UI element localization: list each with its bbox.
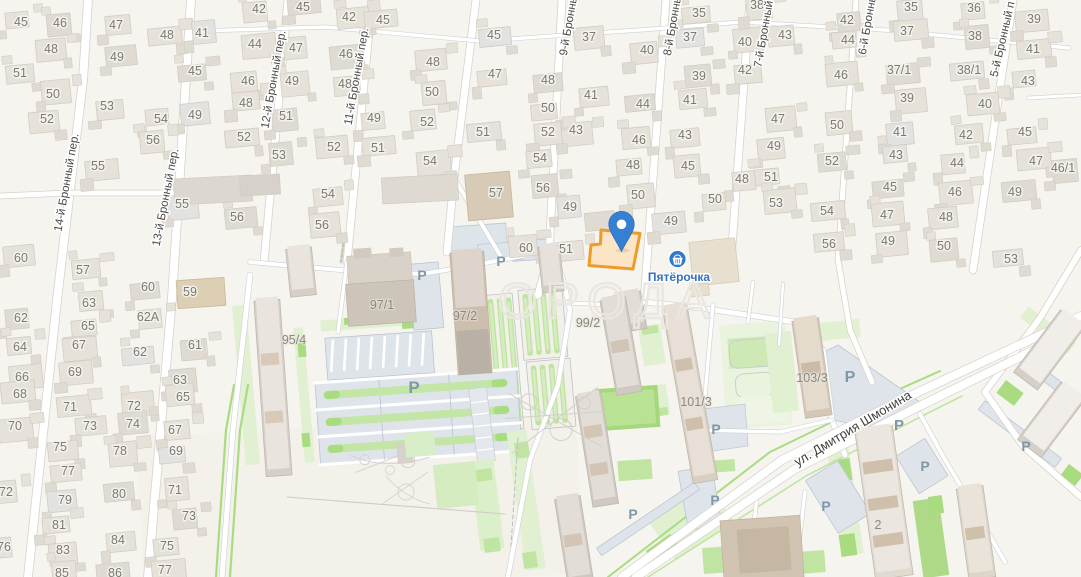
svg-text:46: 46 xyxy=(53,16,67,30)
svg-text:47: 47 xyxy=(880,208,894,222)
svg-text:P: P xyxy=(408,378,419,397)
svg-text:85: 85 xyxy=(55,566,69,577)
svg-text:45: 45 xyxy=(487,28,501,42)
svg-text:57: 57 xyxy=(76,263,90,277)
svg-text:39: 39 xyxy=(692,69,706,83)
svg-text:P: P xyxy=(628,506,637,522)
svg-text:47: 47 xyxy=(1029,154,1043,168)
svg-text:48: 48 xyxy=(939,210,953,224)
svg-text:42: 42 xyxy=(252,2,266,16)
svg-text:45: 45 xyxy=(296,0,310,14)
svg-text:56: 56 xyxy=(536,181,550,195)
svg-text:62: 62 xyxy=(14,311,28,325)
svg-text:P: P xyxy=(845,369,856,386)
svg-text:42: 42 xyxy=(959,128,973,142)
svg-text:49: 49 xyxy=(1008,185,1022,199)
svg-text:49: 49 xyxy=(881,234,895,248)
svg-text:78: 78 xyxy=(113,444,127,458)
svg-text:50: 50 xyxy=(46,87,60,101)
svg-text:80: 80 xyxy=(112,487,126,501)
svg-text:49: 49 xyxy=(188,108,202,122)
svg-text:50: 50 xyxy=(631,188,645,202)
svg-text:48: 48 xyxy=(541,73,555,87)
svg-text:50: 50 xyxy=(541,101,555,115)
svg-text:51: 51 xyxy=(13,66,27,80)
svg-text:44: 44 xyxy=(636,97,650,111)
svg-text:56: 56 xyxy=(315,218,329,232)
svg-text:54: 54 xyxy=(533,151,547,165)
svg-text:45: 45 xyxy=(681,159,695,173)
svg-text:65: 65 xyxy=(81,319,95,333)
svg-text:38: 38 xyxy=(968,29,982,43)
svg-text:51: 51 xyxy=(559,242,573,256)
svg-text:43: 43 xyxy=(678,128,692,142)
svg-text:83: 83 xyxy=(56,543,70,557)
svg-text:54: 54 xyxy=(423,154,437,168)
svg-text:60: 60 xyxy=(141,280,155,294)
svg-text:52: 52 xyxy=(825,154,839,168)
svg-text:P: P xyxy=(710,492,719,508)
svg-text:37: 37 xyxy=(900,24,914,38)
svg-text:35: 35 xyxy=(692,6,706,20)
svg-text:63: 63 xyxy=(173,373,187,387)
svg-text:44: 44 xyxy=(950,156,964,170)
svg-text:61: 61 xyxy=(188,338,202,352)
svg-text:53: 53 xyxy=(1004,252,1018,266)
svg-text:36: 36 xyxy=(967,1,981,15)
svg-text:71: 71 xyxy=(63,400,77,414)
svg-text:72: 72 xyxy=(127,399,141,413)
svg-text:73: 73 xyxy=(182,509,196,523)
svg-text:40: 40 xyxy=(738,35,752,49)
svg-text:97/1: 97/1 xyxy=(370,298,394,312)
svg-text:62: 62 xyxy=(133,345,147,359)
svg-text:41: 41 xyxy=(683,93,697,107)
svg-text:50: 50 xyxy=(425,85,439,99)
svg-text:55: 55 xyxy=(91,159,105,173)
svg-text:101/3: 101/3 xyxy=(680,395,711,409)
svg-text:97/2: 97/2 xyxy=(453,309,477,323)
svg-text:70: 70 xyxy=(8,419,22,433)
svg-text:40: 40 xyxy=(978,97,992,111)
svg-text:52: 52 xyxy=(420,115,434,129)
svg-text:54: 54 xyxy=(321,187,335,201)
svg-text:37: 37 xyxy=(582,30,596,44)
svg-text:47: 47 xyxy=(488,67,502,81)
svg-text:77: 77 xyxy=(158,563,172,577)
svg-text:43: 43 xyxy=(569,123,583,137)
svg-text:75: 75 xyxy=(53,440,67,454)
svg-text:41: 41 xyxy=(584,88,598,102)
svg-text:55: 55 xyxy=(175,197,189,211)
svg-text:50: 50 xyxy=(937,239,951,253)
svg-text:57: 57 xyxy=(489,186,503,200)
svg-text:46: 46 xyxy=(834,68,848,82)
svg-text:47: 47 xyxy=(771,112,785,126)
svg-text:Пятёрочка: Пятёрочка xyxy=(648,270,711,284)
svg-text:95/4: 95/4 xyxy=(282,333,306,347)
svg-text:41: 41 xyxy=(1026,42,1040,56)
svg-text:52: 52 xyxy=(40,112,54,126)
svg-text:71: 71 xyxy=(168,483,182,497)
svg-text:69: 69 xyxy=(68,365,82,379)
svg-text:67: 67 xyxy=(168,423,182,437)
svg-text:60: 60 xyxy=(519,241,533,255)
svg-text:64: 64 xyxy=(13,340,27,354)
svg-text:48: 48 xyxy=(426,55,440,69)
svg-text:60: 60 xyxy=(14,251,28,265)
svg-text:P: P xyxy=(711,421,720,437)
svg-text:75: 75 xyxy=(160,539,174,553)
svg-text:48: 48 xyxy=(44,42,58,56)
svg-text:48: 48 xyxy=(160,28,174,42)
svg-text:45: 45 xyxy=(883,180,897,194)
svg-text:53: 53 xyxy=(100,99,114,113)
svg-text:51: 51 xyxy=(476,125,490,139)
svg-text:P: P xyxy=(1021,438,1030,454)
svg-text:66: 66 xyxy=(15,370,29,384)
svg-text:72: 72 xyxy=(0,485,13,499)
svg-text:54: 54 xyxy=(154,112,168,126)
svg-text:76: 76 xyxy=(0,540,11,554)
svg-text:79: 79 xyxy=(58,493,72,507)
svg-text:52: 52 xyxy=(327,140,341,154)
svg-text:45: 45 xyxy=(188,64,202,78)
svg-text:P: P xyxy=(894,417,904,434)
svg-text:46: 46 xyxy=(632,133,646,147)
svg-text:49: 49 xyxy=(563,200,577,214)
svg-text:46: 46 xyxy=(241,74,255,88)
svg-text:44: 44 xyxy=(248,37,262,51)
svg-text:40: 40 xyxy=(640,43,654,57)
svg-text:45: 45 xyxy=(14,15,28,29)
svg-text:51: 51 xyxy=(279,109,293,123)
svg-text:52: 52 xyxy=(237,130,251,144)
svg-text:39: 39 xyxy=(900,91,914,105)
svg-text:42: 42 xyxy=(342,10,356,24)
svg-text:42: 42 xyxy=(738,63,752,77)
svg-text:39: 39 xyxy=(1027,12,1041,26)
svg-text:43: 43 xyxy=(889,148,903,162)
svg-text:45: 45 xyxy=(1018,125,1032,139)
svg-text:65: 65 xyxy=(176,390,190,404)
svg-text:50: 50 xyxy=(708,192,722,206)
svg-text:81: 81 xyxy=(52,518,66,532)
svg-text:38/1: 38/1 xyxy=(957,63,981,77)
svg-text:86: 86 xyxy=(108,566,122,577)
svg-text:P: P xyxy=(920,458,929,474)
svg-text:48: 48 xyxy=(626,158,640,172)
svg-text:P: P xyxy=(821,498,830,514)
svg-text:44: 44 xyxy=(841,33,855,47)
svg-text:35: 35 xyxy=(904,0,918,14)
svg-text:41: 41 xyxy=(893,125,907,139)
svg-text:56: 56 xyxy=(146,133,160,147)
svg-text:62A: 62A xyxy=(137,310,160,324)
svg-text:63: 63 xyxy=(82,296,96,310)
svg-text:84: 84 xyxy=(111,533,125,547)
svg-text:67: 67 xyxy=(72,338,86,352)
svg-text:49: 49 xyxy=(664,214,678,228)
svg-text:43: 43 xyxy=(778,28,792,42)
svg-text:42: 42 xyxy=(840,13,854,27)
svg-text:P: P xyxy=(496,253,505,269)
svg-text:47: 47 xyxy=(289,41,303,55)
svg-text:43: 43 xyxy=(1021,74,1035,88)
svg-text:53: 53 xyxy=(769,196,783,210)
svg-text:52: 52 xyxy=(541,125,555,139)
svg-text:49: 49 xyxy=(367,111,381,125)
svg-text:51: 51 xyxy=(371,141,385,155)
svg-text:69: 69 xyxy=(169,444,183,458)
svg-text:59: 59 xyxy=(183,285,197,299)
svg-text:54: 54 xyxy=(820,204,834,218)
svg-text:46: 46 xyxy=(339,47,353,61)
svg-text:37/1: 37/1 xyxy=(887,63,911,77)
svg-text:48: 48 xyxy=(735,172,749,186)
svg-text:2: 2 xyxy=(875,518,882,532)
svg-text:46/1: 46/1 xyxy=(1051,161,1075,175)
svg-text:77: 77 xyxy=(61,464,75,478)
svg-text:51: 51 xyxy=(764,170,778,184)
svg-text:48: 48 xyxy=(239,96,253,110)
svg-text:46: 46 xyxy=(948,185,962,199)
svg-text:49: 49 xyxy=(767,139,781,153)
svg-text:56: 56 xyxy=(230,210,244,224)
svg-text:50: 50 xyxy=(830,118,844,132)
svg-text:74: 74 xyxy=(126,417,140,431)
svg-text:56: 56 xyxy=(822,237,836,251)
svg-text:49: 49 xyxy=(285,74,299,88)
svg-text:68: 68 xyxy=(13,387,27,401)
svg-text:37: 37 xyxy=(683,30,697,44)
svg-text:47: 47 xyxy=(109,18,123,32)
svg-text:P: P xyxy=(417,267,426,283)
svg-text:53: 53 xyxy=(272,148,286,162)
svg-text:103/3: 103/3 xyxy=(796,371,827,385)
svg-text:45: 45 xyxy=(376,13,390,27)
svg-text:73: 73 xyxy=(83,419,97,433)
svg-text:49: 49 xyxy=(110,50,124,64)
svg-text:41: 41 xyxy=(195,26,209,40)
